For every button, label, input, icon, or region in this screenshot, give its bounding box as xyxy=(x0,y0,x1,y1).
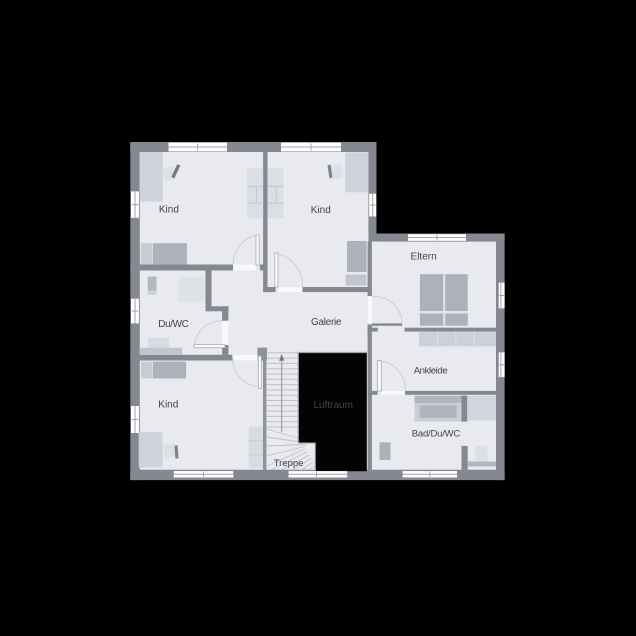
svg-text:Kind: Kind xyxy=(159,205,179,216)
svg-text:Treppe: Treppe xyxy=(274,458,304,469)
svg-text:Ankleide: Ankleide xyxy=(414,366,448,377)
svg-text:Luftraum: Luftraum xyxy=(313,400,352,411)
svg-text:Bad/Du/WC: Bad/Du/WC xyxy=(412,429,461,440)
svg-text:Kind: Kind xyxy=(158,400,178,411)
svg-text:Galerie: Galerie xyxy=(311,317,342,328)
svg-text:Eltern: Eltern xyxy=(411,252,437,263)
svg-text:Kind: Kind xyxy=(311,205,331,216)
svg-text:Du/WC: Du/WC xyxy=(158,319,188,330)
